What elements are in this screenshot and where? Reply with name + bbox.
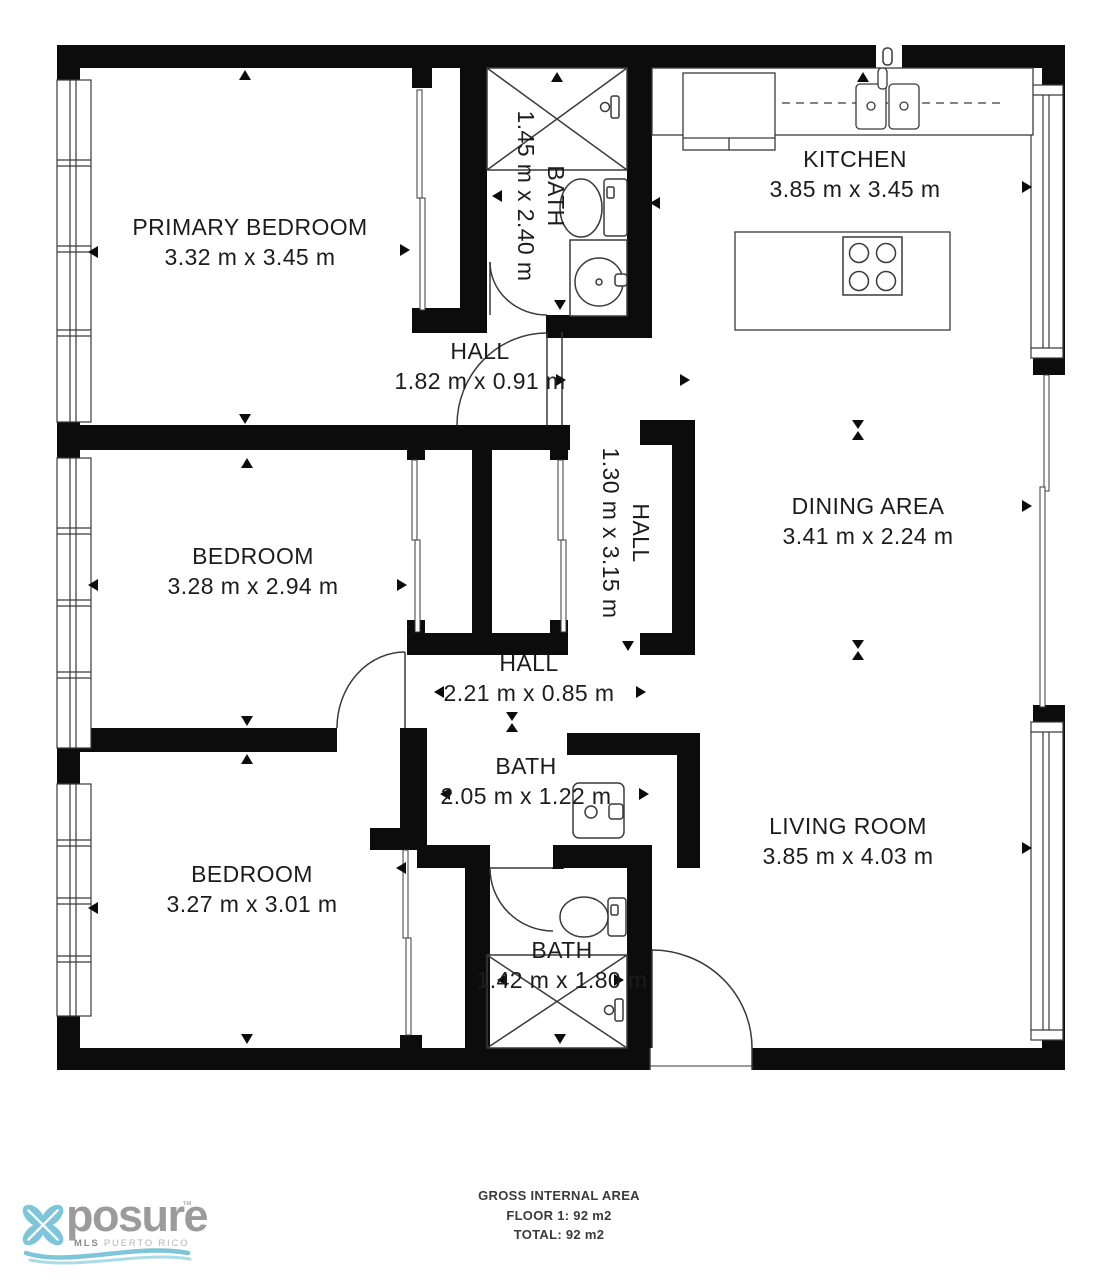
room-name: HALL: [395, 336, 566, 366]
xposure-logo: posure ™ MLS PUERTO RICO: [16, 1198, 216, 1270]
window-left-bedroom2: [57, 458, 91, 748]
room-dims: 3.41 m x 2.24 m: [783, 521, 954, 551]
room-name: HALL: [444, 648, 615, 678]
room-dims: 3.85 m x 4.03 m: [763, 841, 934, 871]
room-name: KITCHEN: [770, 144, 941, 174]
gross-area-floor: FLOOR 1: 92 m2: [478, 1206, 640, 1226]
room-name: BATH: [477, 935, 648, 965]
gross-area-summary: GROSS INTERNAL AREA FLOOR 1: 92 m2 TOTAL…: [478, 1186, 640, 1245]
room-dims: 3.27 m x 3.01 m: [167, 889, 338, 919]
gross-area-title: GROSS INTERNAL AREA: [478, 1186, 640, 1206]
top-wall-vent: [876, 45, 902, 68]
entry-opening: [650, 1048, 752, 1070]
room-dims: 1.30 m x 3.15 m: [596, 448, 626, 619]
room-name: DINING AREA: [783, 491, 954, 521]
refrigerator-icon: [683, 73, 775, 150]
room-name: BATH: [441, 751, 612, 781]
room-dims: 3.85 m x 3.45 m: [770, 174, 941, 204]
room-dims: 2.21 m x 0.85 m: [444, 678, 615, 708]
room-dims: 1.45 m x 2.40 m: [511, 111, 541, 282]
room-name: LIVING ROOM: [763, 811, 934, 841]
logo-brand-text: posure: [66, 1190, 207, 1242]
room-label-bedroom2: BEDROOM 3.28 m x 2.94 m: [168, 541, 339, 601]
floorplan-page: { "plan": { "rooms": [ {"name": "PRIMARY…: [0, 0, 1099, 1280]
room-dims: 1.82 m x 0.91 m: [395, 366, 566, 396]
gross-area-total: TOTAL: 92 m2: [478, 1225, 640, 1245]
stove-icon: [843, 237, 902, 295]
room-label-bath-middle: BATH 2.05 m x 1.22 m: [441, 751, 612, 811]
room-label-hall-top: HALL 1.82 m x 0.91 m: [395, 336, 566, 396]
toilet-bottom-icon: [560, 897, 626, 937]
logo-tm: ™: [182, 1200, 192, 1211]
wave-swoosh-icon: [24, 1245, 194, 1267]
room-dims: 3.28 m x 2.94 m: [168, 571, 339, 601]
room-name: HALL: [626, 448, 656, 619]
room-label-primary-bedroom: PRIMARY BEDROOM 3.32 m x 3.45 m: [132, 212, 367, 272]
room-name: BEDROOM: [167, 859, 338, 889]
room-name: BATH: [541, 111, 571, 282]
window-left-bedroom3: [57, 784, 91, 1016]
room-label-kitchen: KITCHEN 3.85 m x 3.45 m: [770, 144, 941, 204]
room-dims: 2.05 m x 1.22 m: [441, 781, 612, 811]
butterfly-x-icon: [22, 1204, 64, 1246]
room-dims: 3.32 m x 3.45 m: [132, 242, 367, 272]
room-label-bedroom3: BEDROOM 3.27 m x 3.01 m: [167, 859, 338, 919]
room-label-hall-middle: HALL 2.21 m x 0.85 m: [444, 648, 615, 708]
window-left-primary-bedroom: [57, 80, 91, 422]
room-name: BEDROOM: [168, 541, 339, 571]
sliding-door-right-wall: [1036, 375, 1065, 707]
window-right-living: [1031, 722, 1063, 1040]
window-right-kitchen: [1031, 85, 1063, 358]
room-label-living-room: LIVING ROOM 3.85 m x 4.03 m: [763, 811, 934, 871]
room-label-hall-vertical: HALL 1.30 m x 3.15 m: [596, 448, 656, 619]
room-label-bath-top: BATH 1.45 m x 2.40 m: [511, 111, 571, 282]
vanity-sink-top-icon: [570, 240, 627, 316]
room-label-dining-area: DINING AREA 3.41 m x 2.24 m: [783, 491, 954, 551]
room-label-bath-bottom: BATH 1.42 m x 1.80 m: [477, 935, 648, 995]
room-name: PRIMARY BEDROOM: [132, 212, 367, 242]
room-dims: 1.42 m x 1.80 m: [477, 965, 648, 995]
